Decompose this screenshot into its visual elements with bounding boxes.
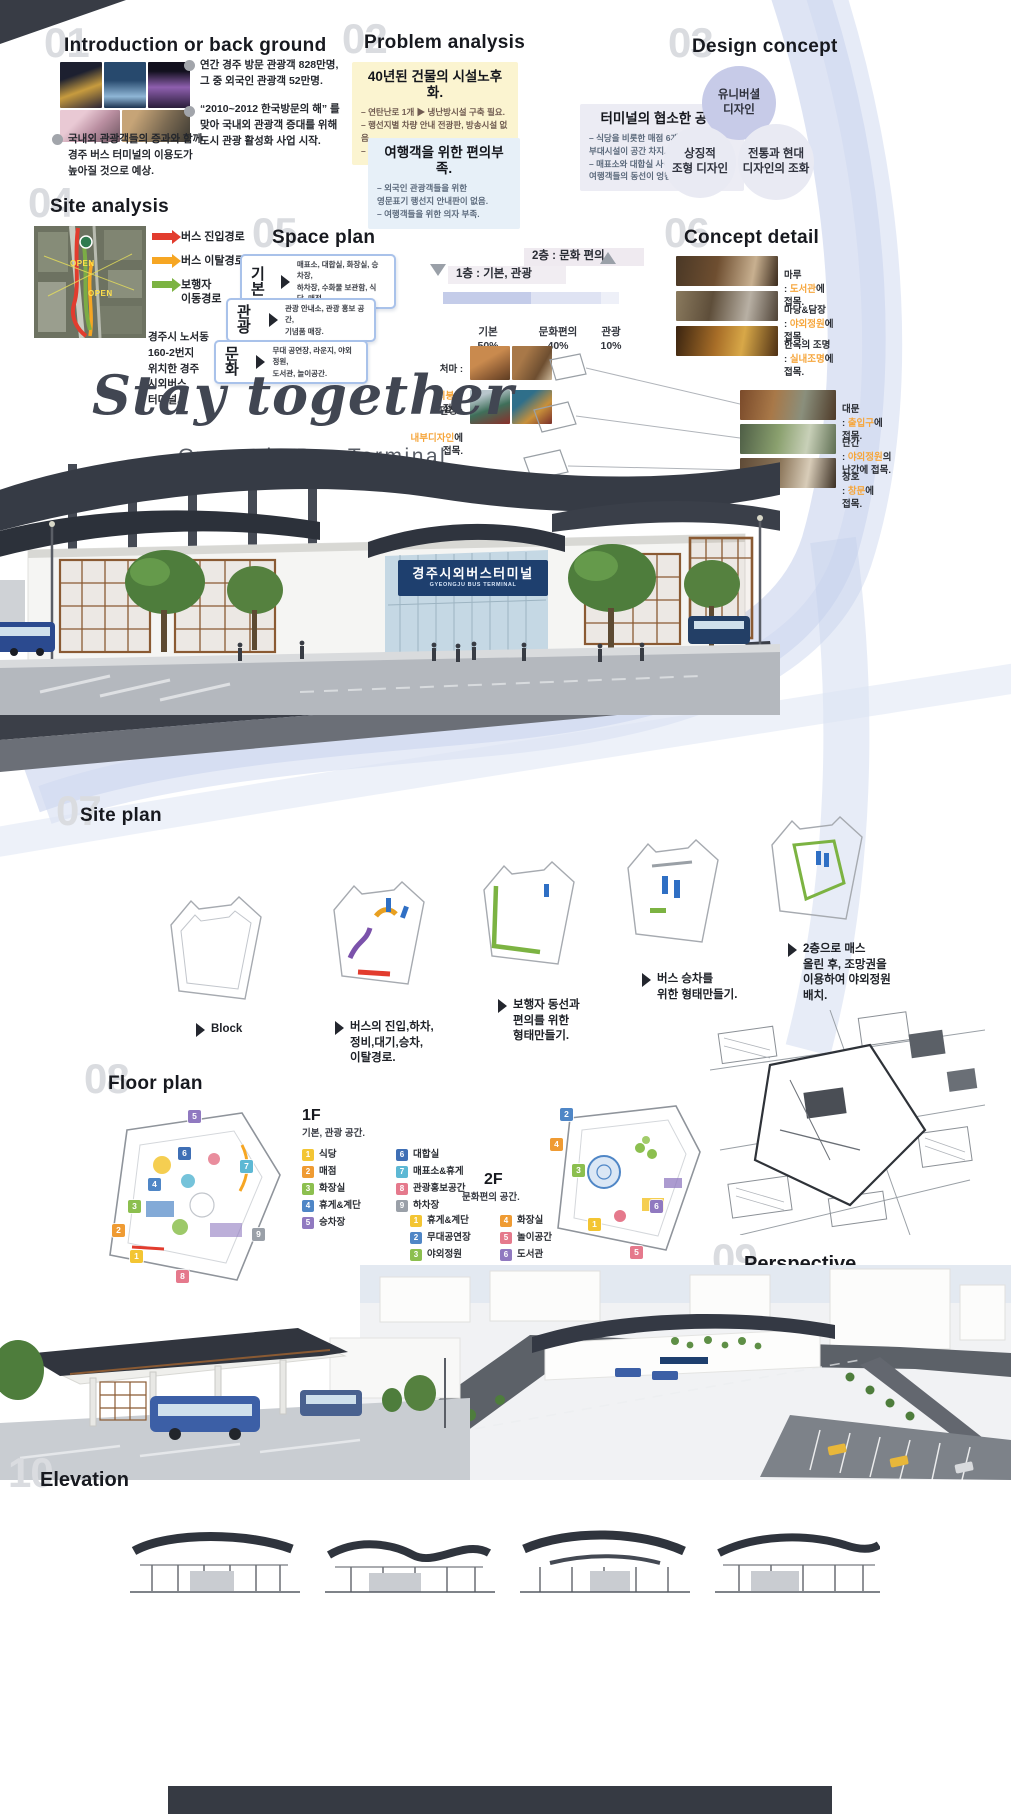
concept-circle-symbolic: 상징적 조형 디자인: [664, 126, 736, 198]
chevron-icon: [498, 999, 507, 1013]
bar-segment-culture: [531, 292, 601, 304]
chevron-icon: [196, 1023, 205, 1037]
photo-madang: [676, 291, 778, 321]
plan-chip: 9: [252, 1228, 265, 1241]
space-ratio-bar: [443, 292, 619, 304]
connector-dot: [184, 106, 195, 117]
terminal-sign: 경주시외버스터미널 GYEONGJU BUS TERMINAL: [398, 560, 548, 596]
plan-chip: 2: [112, 1224, 125, 1237]
plan-chip: 1: [130, 1250, 143, 1263]
section-title-floor-plan: Floor plan: [108, 1074, 203, 1093]
floor1-band: 1층 : 기본, 관광: [448, 266, 566, 284]
siteplan-caption: 2층으로 매스 올린 후, 조망권을 이용하여 야외정원 배치.: [788, 942, 918, 1004]
siteplan-caption: 보행자 동선과 편의를 위한 형태만들기.: [498, 998, 613, 1045]
concept-item-lighting: 한옥의 조명: 실내조명에 접목.: [784, 326, 879, 379]
siteplan-step-mass: [766, 815, 866, 925]
plan-chip: 4: [148, 1178, 161, 1191]
chevron-icon: [788, 943, 797, 957]
siteplan-step-busroute: [328, 880, 428, 990]
floorplan-1f-drawing: [92, 1105, 292, 1290]
poster-board: 01 Introduction or back ground 연간 경주 방문 …: [0, 0, 1011, 1814]
space-row-tour: 관광 관광 안내소, 관광 홍보 공간, 기념품 매장.: [226, 298, 376, 342]
concept-item-changho: 창호: 창문에 접목.: [842, 458, 922, 511]
problem-box-convenience: 여행객을 위한 편의부족. – 외국인 관광객들을 위한 영문표기 행선지 안내…: [368, 138, 520, 229]
legend-label: 버스 이탈경로: [181, 254, 245, 268]
chevron-icon: [281, 275, 290, 289]
chevron-icon: [642, 973, 651, 987]
legend-bus-exit: 버스 이탈경로: [152, 254, 245, 268]
photo-tower-night: [60, 62, 102, 108]
problem-bullet: – 연탄난로 1개 ▶ 냉난방시설 구축 필요.: [361, 106, 509, 119]
section-title-concept-detail: Concept detail: [684, 228, 819, 247]
site-analysis-map: [34, 226, 146, 338]
bus-entry-arrow-icon: [152, 233, 172, 240]
plan-chip: 5: [188, 1110, 201, 1123]
legend-chip: 2: [410, 1232, 422, 1244]
legend-chip: 2: [302, 1166, 314, 1178]
floor2-label: 2F: [484, 1172, 503, 1188]
problem-box-title: 여행객을 위한 편의부족.: [377, 145, 511, 177]
photo-maru: [676, 256, 778, 286]
elevation-drawings: [130, 1505, 880, 1615]
bar-segment-basic: [443, 292, 531, 304]
connector-dot: [52, 134, 63, 145]
legend-chip: 4: [500, 1215, 512, 1227]
pedestrian-arrow-icon: [152, 281, 172, 288]
legend-chip: 3: [410, 1249, 422, 1261]
floor2-legend-col2: 4화장실 5놀이공간 6도서관: [500, 1212, 586, 1263]
legend-chip: 5: [500, 1232, 512, 1244]
space-category: 기본: [251, 267, 274, 297]
siteplan-caption: 버스 승차를 위한 형태만들기.: [642, 972, 762, 1003]
legend-chip: 3: [302, 1183, 314, 1195]
floor1-label: 1F: [302, 1108, 321, 1124]
floor2-legend-col1: 1휴게&계단 2무대공연장 3야외정원: [410, 1212, 496, 1263]
siteplan-step-pedestrian: [478, 860, 578, 970]
legend-chip: 5: [302, 1217, 314, 1229]
photo-purple-tower: [148, 62, 190, 108]
legend-chip: 8: [396, 1183, 408, 1195]
main-render: [0, 430, 780, 715]
legend-label: 보행자 이동경로: [181, 278, 221, 307]
problem-box-title: 40년된 건물의 시설노후화.: [361, 69, 509, 101]
map-open-label: OPEN: [88, 290, 113, 298]
legend-pedestrian: 보행자 이동경로: [152, 278, 221, 307]
legend-chip: 6: [396, 1149, 408, 1161]
floor1-label: 1층 : 기본, 관광: [456, 269, 532, 281]
plan-chip: 7: [240, 1160, 253, 1173]
canopy-render: [0, 1298, 470, 1480]
poster-title: Stay together: [92, 368, 514, 422]
plan-chip: 3: [572, 1164, 585, 1177]
plan-chip: 4: [550, 1138, 563, 1151]
siteplan-step-block: [165, 895, 265, 1005]
terminal-sign-english: GYEONGJU BUS TERMINAL: [430, 582, 517, 590]
section-title-site-analysis: Site analysis: [50, 197, 169, 216]
siteplan-step-platform: [622, 838, 722, 948]
legend-chip: 7: [396, 1166, 408, 1178]
legend-chip: 1: [302, 1149, 314, 1161]
photo-daemun: [740, 390, 836, 420]
plan-chip: 3: [128, 1200, 141, 1213]
siteplan-caption: 버스의 진입,하차, 정비,대기,승차, 이탈경로.: [335, 1020, 455, 1067]
floor2-band: 2층 : 문화 편의: [524, 248, 644, 266]
section-title-concept: Design concept: [692, 37, 838, 56]
photo-collage: [60, 62, 190, 142]
section-title-space-plan: Space plan: [272, 228, 375, 247]
problem-bullet: – 여행객들을 위한 의자 부족.: [377, 208, 511, 221]
photo-pavilion-night: [104, 62, 146, 108]
siteplan-caption: Block: [196, 1022, 306, 1038]
section-title-introduction: Introduction or back ground: [64, 36, 326, 55]
section-title-problem: Problem analysis: [364, 33, 525, 52]
legend-chip: 4: [302, 1200, 314, 1212]
legend-chip: 9: [396, 1200, 408, 1212]
space-category: 관광: [237, 305, 262, 335]
plan-chip: 5: [630, 1246, 643, 1259]
intro-note: 연간 경주 방문 관광객 828만명, 그 중 외국인 관광객 52만명.: [200, 58, 360, 90]
bus-exit-arrow-icon: [152, 257, 172, 264]
up-arrow-icon: [600, 252, 616, 264]
site-context-drawing: [710, 1010, 985, 1235]
section-title-site-plan: Site plan: [80, 806, 162, 825]
plan-chip: 6: [650, 1200, 663, 1213]
plan-chip: 2: [560, 1108, 573, 1121]
floor2-subtitle: 문화편의 공간.: [462, 1192, 520, 1204]
map-open-label: OPEN: [70, 260, 95, 268]
plan-chip: 1: [588, 1218, 601, 1231]
concept-circle-tradition: 전통과 현대 디자인의 조화: [738, 124, 814, 200]
legend-chip: 1: [410, 1215, 422, 1227]
plan-chip: 6: [178, 1147, 191, 1160]
legend-chip: 6: [500, 1249, 512, 1261]
chevron-icon: [335, 1021, 344, 1035]
chevron-icon: [269, 313, 278, 327]
problem-bullet: – 외국인 관광객들을 위한 영문표기 행선지 안내판이 없음.: [377, 182, 511, 208]
legend-label: 버스 진입경로: [181, 230, 245, 244]
plan-chip: 8: [176, 1270, 189, 1283]
section-title-elevation: Elevation: [40, 1470, 129, 1490]
bar-segment-tour: [601, 292, 619, 304]
connector-dot: [184, 60, 195, 71]
floor1-legend-col1: 1식당 2매점 3화장실 4휴게&계단 5승차장: [302, 1146, 394, 1231]
space-desc: 관광 안내소, 관광 홍보 공간, 기념품 매장.: [285, 303, 365, 337]
bottom-bar: [168, 1786, 832, 1814]
intro-note: 국내외 관광객들의 증과와 함께 경주 버스 터미널의 이용도가 높아질 것으로…: [68, 132, 243, 179]
floor1-subtitle: 기본, 관광 공간.: [302, 1128, 365, 1140]
down-arrow-icon: [430, 264, 446, 276]
terminal-sign-korean: 경주시외버스터미널: [412, 566, 533, 582]
legend-bus-entry: 버스 진입경로: [152, 230, 245, 244]
floor2-label: 2층 : 문화 편의: [532, 251, 605, 263]
